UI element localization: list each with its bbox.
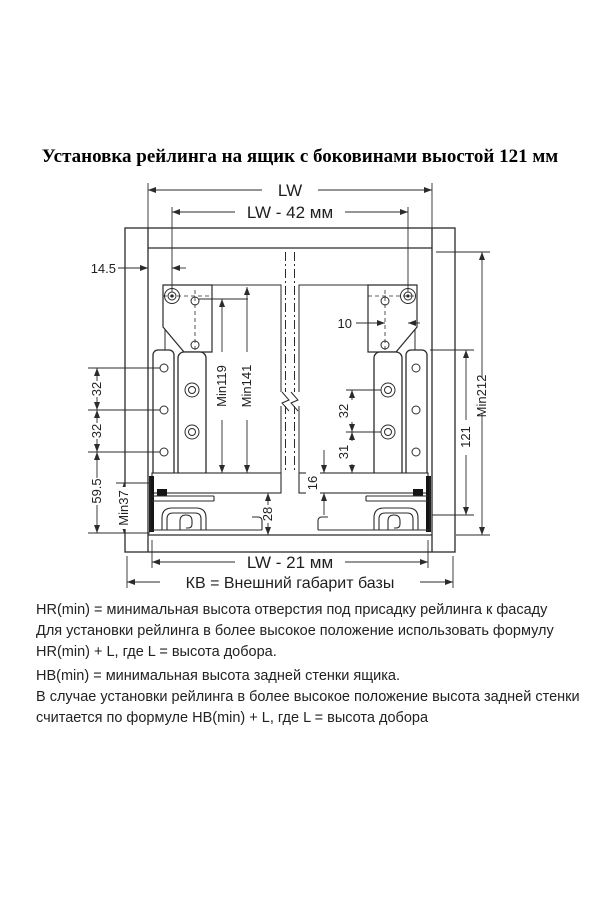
note-line: HR(min) = минимальная высота отверстия п…	[36, 600, 581, 621]
break-centerlines	[286, 252, 295, 472]
railing-bracket-left	[163, 285, 212, 352]
note-line: считается по формуле HB(min) + L, где L …	[36, 708, 581, 729]
bumper	[157, 489, 167, 496]
dim-32-left-b: 32	[89, 424, 104, 438]
slide-hook	[180, 515, 192, 530]
bracket-plate	[368, 285, 417, 352]
dim-32-left-a: 32	[89, 382, 104, 396]
rail-inner-profile	[374, 352, 402, 477]
dim-10: 10	[338, 316, 352, 331]
note-hr-min: HR(min) = минимальная высота отверстия п…	[36, 600, 581, 663]
note-line: В случае установки рейлинга в более высо…	[36, 687, 581, 708]
rail-inner-profile	[178, 352, 206, 477]
bracket-plate	[163, 285, 212, 352]
installation-diagram: LW LW - 42 мм 14.5 10 32 32 59.5 Min37 M…	[0, 0, 600, 900]
dim-121: 121	[458, 426, 473, 448]
dim-kv: КВ = Внешний габарит базы	[186, 575, 395, 592]
dim-lw-21: LW - 21 мм	[247, 553, 333, 572]
dim-min141: Min141	[239, 365, 254, 408]
side-rail-left	[153, 350, 206, 479]
side-rail-right	[374, 350, 427, 479]
note-line: HR(min) + L, где L = высота добора.	[36, 642, 581, 663]
dim-14-5: 14.5	[91, 261, 116, 276]
note-line: Для установки рейлинга в более высокое п…	[36, 621, 581, 642]
dim-31: 31	[336, 445, 351, 459]
slide-hook	[388, 515, 400, 530]
dim-min119: Min119	[214, 365, 229, 407]
dim-min212: Min212	[474, 375, 489, 418]
dim-lw: LW	[278, 181, 302, 200]
dim-59-5: 59.5	[89, 478, 104, 503]
note-line: HB(min) = минимальная высота задней стен…	[36, 666, 581, 687]
rail-outer-profile	[153, 350, 174, 479]
dim-28: 28	[260, 507, 275, 521]
page: Установка рейлинга на ящик с боковинами …	[0, 0, 600, 900]
note-hb-min: HB(min) = минимальная высота задней стен…	[36, 666, 581, 729]
railing-bracket-right	[368, 285, 417, 352]
bumper	[413, 489, 423, 496]
drawer-bottom-panel	[152, 473, 428, 493]
dim-min37: Min37	[116, 490, 131, 525]
dim-32-right: 32	[336, 404, 351, 418]
slide-hat-outer	[374, 508, 418, 530]
dim-lw-42: LW - 42 мм	[247, 203, 333, 222]
rail-outer-profile	[406, 350, 427, 479]
dim-16: 16	[305, 476, 320, 490]
slide-hat-outer	[162, 508, 206, 530]
